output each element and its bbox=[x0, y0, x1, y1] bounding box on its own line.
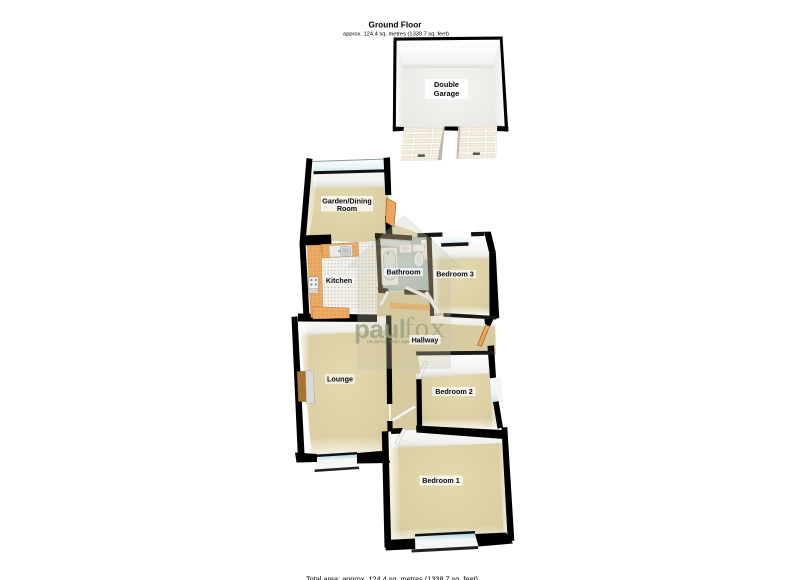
svg-text:Room: Room bbox=[337, 204, 357, 213]
svg-text:Bedroom 3: Bedroom 3 bbox=[436, 270, 474, 279]
svg-text:Total area: approx. 124.4 sq.: Total area: approx. 124.4 sq. metres (13… bbox=[306, 575, 478, 580]
svg-text:Bedroom 2: Bedroom 2 bbox=[435, 387, 473, 396]
svg-text:Lounge: Lounge bbox=[327, 375, 353, 384]
svg-text:Hallway: Hallway bbox=[412, 336, 439, 345]
svg-text:Garage: Garage bbox=[434, 89, 459, 98]
svg-text:Kitchen: Kitchen bbox=[326, 276, 352, 285]
svg-text:Bathroom: Bathroom bbox=[387, 268, 421, 277]
svg-text:Bedroom 1: Bedroom 1 bbox=[422, 476, 460, 485]
svg-text:Ground Floor: Ground Floor bbox=[369, 20, 423, 30]
svg-text:approx. 124.4 sq. metres (1339: approx. 124.4 sq. metres (1339.7 sq. fee… bbox=[343, 31, 449, 37]
svg-text:Double: Double bbox=[434, 80, 459, 89]
